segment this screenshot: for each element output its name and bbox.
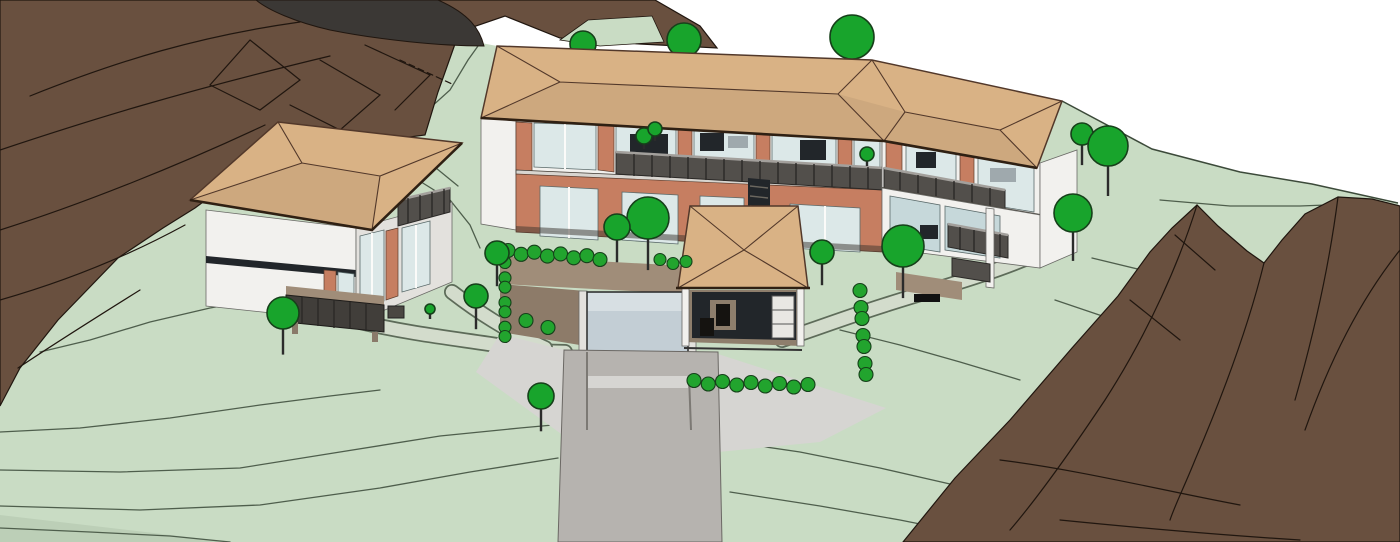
hedge-bush — [730, 378, 744, 392]
hedge-bush — [787, 380, 801, 394]
pavilion — [676, 206, 810, 350]
pavilion-post-right — [797, 288, 804, 346]
hedge-bush — [801, 378, 815, 392]
hedge-bush — [580, 249, 594, 263]
hedge-bush — [853, 284, 867, 298]
hedge-bush — [499, 331, 511, 343]
tree-canopy — [648, 122, 662, 136]
deck-bench — [388, 306, 404, 318]
left-house-pier — [386, 228, 398, 300]
hedge-bush — [654, 254, 666, 266]
hedge-bush — [554, 247, 568, 261]
tree-canopy — [830, 15, 874, 59]
hedge-bush — [514, 247, 528, 261]
pavilion-interior — [684, 290, 802, 350]
pavilion-cabinet — [772, 296, 794, 338]
tree-canopy — [464, 284, 488, 308]
site-model-view — [0, 0, 1400, 542]
tree-canopy — [810, 240, 834, 264]
ramp-step-band — [587, 376, 688, 388]
hedge-bush — [667, 258, 679, 270]
terrace-grill — [914, 294, 940, 302]
hedge-bush — [527, 245, 541, 259]
hedge-bush — [541, 321, 555, 335]
tree-canopy — [627, 197, 669, 239]
site-model-svg — [0, 0, 1400, 542]
hedge-bush — [701, 377, 715, 391]
hedge-bush — [716, 375, 730, 389]
tree-canopy — [604, 214, 630, 240]
tree-canopy — [267, 297, 299, 329]
pavilion-roof — [676, 206, 810, 288]
hedge-bush — [857, 340, 871, 354]
hedge-bush — [758, 379, 772, 393]
hedge-bush — [540, 249, 554, 263]
pavilion-post-left — [682, 288, 689, 346]
hedge-bush — [680, 256, 692, 268]
deck-leg-right — [372, 332, 378, 342]
main-left-end-wall — [481, 118, 516, 230]
hedge-bush — [567, 251, 581, 265]
pavilion-stool — [700, 318, 714, 336]
hedge-bush — [687, 374, 701, 388]
hedge-bush — [593, 253, 607, 267]
hedge-bush — [519, 314, 533, 328]
tree-canopy — [528, 383, 554, 409]
hedge-bush — [855, 312, 869, 326]
hedge-bush — [773, 377, 787, 391]
tree-canopy — [1054, 194, 1092, 232]
hedge-bush — [499, 281, 511, 293]
hedge-bush — [499, 306, 511, 318]
tree-canopy — [485, 241, 509, 265]
tree-canopy — [860, 147, 874, 161]
tree-canopy — [882, 225, 924, 267]
hedge-bush — [744, 376, 758, 390]
hedge-bush — [859, 368, 873, 382]
courtyard-post-left — [579, 291, 587, 352]
courtyard-skylight-highlight — [588, 293, 687, 311]
tree-canopy — [425, 304, 435, 314]
tree-canopy — [1088, 126, 1128, 166]
